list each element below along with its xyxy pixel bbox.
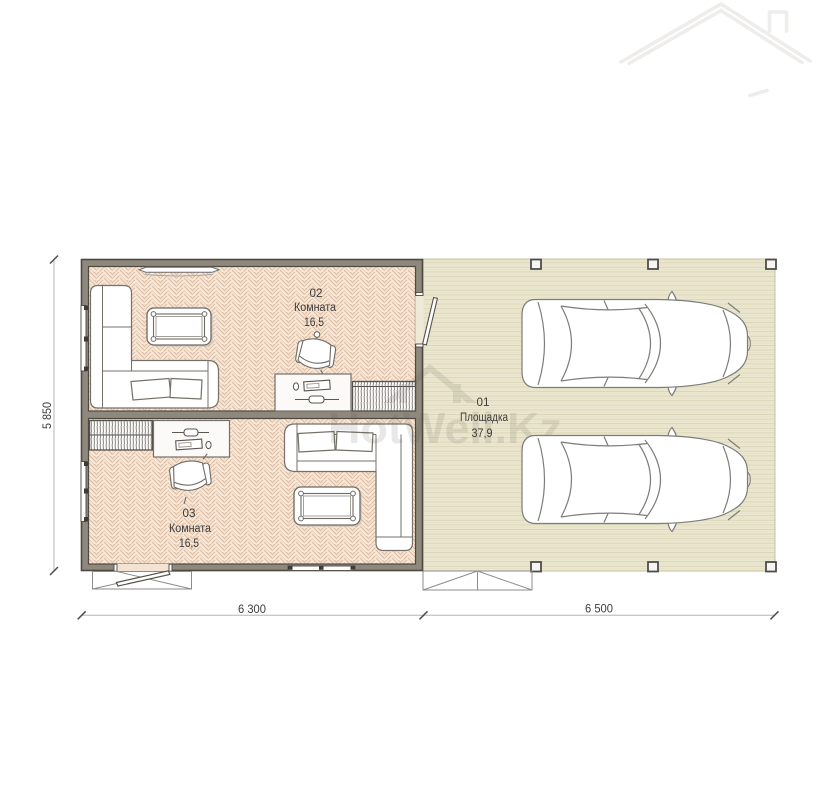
svg-text:16,5: 16,5 — [304, 315, 324, 329]
svg-text:02: 02 — [310, 286, 323, 300]
svg-text:01: 01 — [477, 395, 490, 409]
svg-text:03: 03 — [183, 506, 196, 520]
svg-text:5 850: 5 850 — [42, 402, 54, 429]
svg-text:Комната: Комната — [294, 302, 337, 314]
svg-text:16,5: 16,5 — [179, 536, 199, 550]
svg-text:Площадка: Площадка — [460, 412, 509, 424]
svg-text:Комната: Комната — [169, 523, 212, 535]
svg-text:6 500: 6 500 — [585, 604, 613, 616]
svg-text:6 300: 6 300 — [238, 604, 266, 616]
svg-text:37,9: 37,9 — [472, 426, 493, 440]
